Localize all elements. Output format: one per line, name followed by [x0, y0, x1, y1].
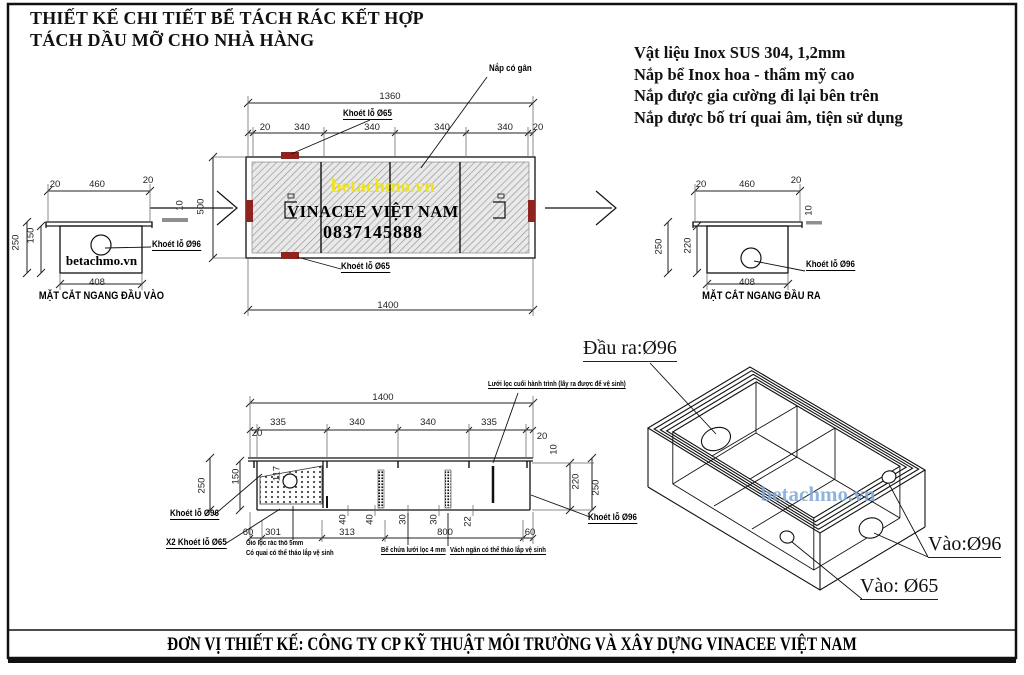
filter-box-note: Bể chứa lưới lọc 4 mm [381, 547, 446, 555]
long-bottom-dim: 313 [335, 527, 359, 538]
flow-arrow-right [545, 191, 616, 225]
plan-seg-dim: 20 [530, 122, 546, 133]
spec-line: Nắp được bố trí quai âm, tiện sử dụng [634, 107, 903, 129]
design-company-footer: ĐƠN VỊ THIẾT KẾ: CÔNG TY CP KỸ THUẬT MÔI… [109, 634, 915, 656]
mesh-baffle [378, 470, 384, 508]
long-seg-dim: 340 [415, 417, 441, 428]
long-seg-dim: 335 [265, 417, 291, 428]
long-dim-250r: 250 [591, 476, 602, 500]
plan-dim-1360: 1360 [375, 91, 405, 102]
plan-seg-dim: 340 [492, 122, 518, 133]
material-specs: Vật liệu Inox SUS 304, 1,2mm Nắp bể Inox… [634, 42, 903, 128]
section-in-caption: MẶT CẮT NGANG ĐẦU VÀO [39, 290, 162, 302]
long-hole-left: Khoét lỗ Ø96 [170, 508, 219, 520]
baffle-note: Vách ngăn có thể tháo lắp vệ sinh [450, 547, 546, 555]
sheet-title-line2: TÁCH DẦU MỠ CHO NHÀ HÀNG [30, 30, 314, 51]
watermark-iso: betachmo.vn [752, 482, 884, 507]
long-dim-1400: 1400 [368, 392, 398, 403]
long-bottom-dim: 60 [522, 527, 538, 538]
lip-dash [162, 218, 188, 222]
basket-note-1: Giỏ lọc rác thô 5mm [246, 540, 303, 547]
hole-circle [91, 235, 111, 255]
out-dim-460: 460 [735, 179, 759, 190]
in-dim-20b: 20 [140, 175, 156, 186]
long-seg-dim: 335 [476, 417, 502, 428]
watermark-plan: betachmo.vn [322, 176, 444, 198]
out-dim-10: 10 [804, 199, 815, 223]
plan-hole-label-bottom: Khoét lỗ Ø65 [341, 261, 390, 273]
in-dim-408: 408 [84, 277, 110, 288]
out-dim-250: 250 [654, 235, 665, 259]
plan-dim-500: 500 [196, 195, 207, 219]
long-inner-dim: 40 [365, 508, 376, 532]
long-hole-left2: X2 Khoét lỗ Ø65 [166, 537, 227, 549]
iso-outlet-label: Đầu ra:Ø96 [583, 337, 677, 362]
iso-inlet96-label: Vào:Ø96 [928, 533, 1001, 558]
out-hole-label: Khoét lỗ Ø96 [806, 259, 855, 271]
in-dim-20a: 20 [47, 179, 63, 190]
plan-seg-dim: 340 [289, 122, 315, 133]
long-dim-117: 117 [272, 462, 283, 486]
hole-circle [741, 248, 761, 268]
section-out-caption: MẶT CẮT NGANG ĐẦU RA [702, 290, 806, 302]
in-hole-label: Khoét lỗ Ø96 [152, 239, 201, 251]
final-filter-note: Lưới lọc cuối hành trình (lấy ra được để… [488, 381, 626, 389]
out-dim-220: 220 [683, 234, 694, 258]
long-seg-dim: 340 [344, 417, 370, 428]
spec-line: Vật liệu Inox SUS 304, 1,2mm [634, 42, 903, 64]
long-dim-10r: 10 [549, 438, 560, 462]
long-bottom-dim: 60 [240, 527, 256, 538]
plan-seg-dim: 20 [257, 122, 273, 133]
mesh-baffle [445, 470, 451, 508]
long-dim-150: 150 [231, 465, 242, 489]
spec-line: Nắp bể Inox hoa - thẩm mỹ cao [634, 64, 903, 86]
long-bottom-dim: 301 [261, 527, 285, 538]
phone-number: 0837145888 [280, 222, 466, 243]
out-dim-20b: 20 [788, 175, 804, 186]
iso-view [648, 363, 928, 599]
out-dim-408: 408 [734, 277, 760, 288]
plan-hole-label-top: Khoét lỗ Ø65 [343, 108, 392, 120]
plan-dim-1400: 1400 [373, 300, 403, 311]
plan-lid-note: Nắp có gân [489, 63, 532, 73]
long-inner-dim: 22 [463, 510, 474, 534]
company-name: VINACEE VIỆT NAM [280, 202, 466, 222]
plan-seg-dim: 340 [429, 122, 455, 133]
long-dim-220: 220 [571, 470, 582, 494]
sheet-title-line1: THIẾT KẾ CHI TIẾT BỂ TÁCH RÁC KẾT HỢP [30, 8, 424, 29]
drawing-sheet: THIẾT KẾ CHI TIẾT BỂ TÁCH RÁC KẾT HỢP TÁ… [0, 0, 1024, 675]
plan-dim-10: 10 [175, 194, 186, 218]
plan-seg-dim: 340 [359, 122, 385, 133]
out-dim-20a: 20 [693, 179, 709, 190]
long-hole-right: Khoét lỗ Ø96 [588, 512, 637, 524]
long-seg-dim: 20 [250, 428, 264, 439]
long-bottom-dim: 800 [433, 527, 457, 538]
watermark-section-in: betachmo.vn [61, 253, 142, 269]
iso-inlet65-label: Vào: Ø65 [860, 575, 938, 600]
in-dim-150: 150 [26, 224, 37, 248]
long-dim-250l: 250 [197, 474, 208, 498]
spec-line: Nắp được gia cường đi lại bên trên [634, 85, 903, 107]
basket-note-2: Có quai có thể tháo lắp vệ sinh [246, 550, 334, 557]
long-inner-dim: 30 [398, 508, 409, 532]
section-in-view [23, 184, 154, 290]
in-dim-250: 250 [11, 231, 22, 255]
hole-circle [283, 474, 297, 488]
in-dim-460: 460 [85, 179, 109, 190]
